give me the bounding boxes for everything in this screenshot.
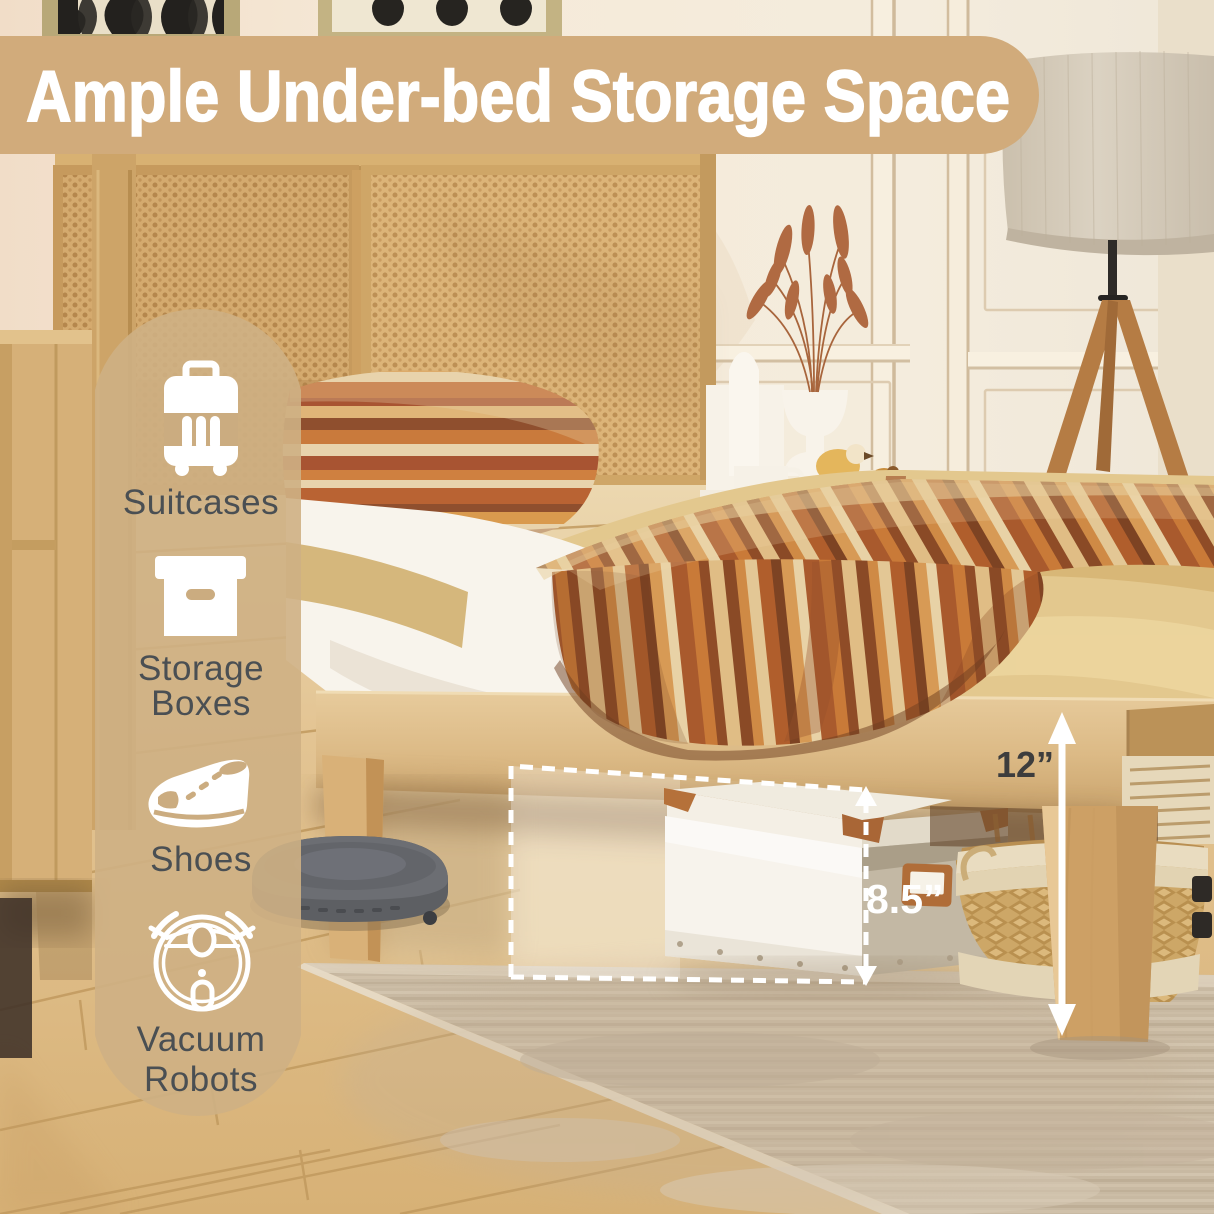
svg-text:8.5”: 8.5” [866, 876, 944, 922]
svg-text:Ample Under-bed Storage Space: Ample Under-bed Storage Space [26, 57, 1010, 137]
svg-text:Boxes: Boxes [151, 684, 251, 723]
svg-text:Shoes: Shoes [150, 840, 252, 879]
svg-text:12”: 12” [996, 744, 1054, 785]
svg-text:Robots: Robots [144, 1060, 258, 1099]
svg-text:Vacuum: Vacuum [137, 1020, 266, 1059]
svg-text:Suitcases: Suitcases [123, 483, 279, 522]
svg-text:Storage: Storage [138, 649, 264, 688]
